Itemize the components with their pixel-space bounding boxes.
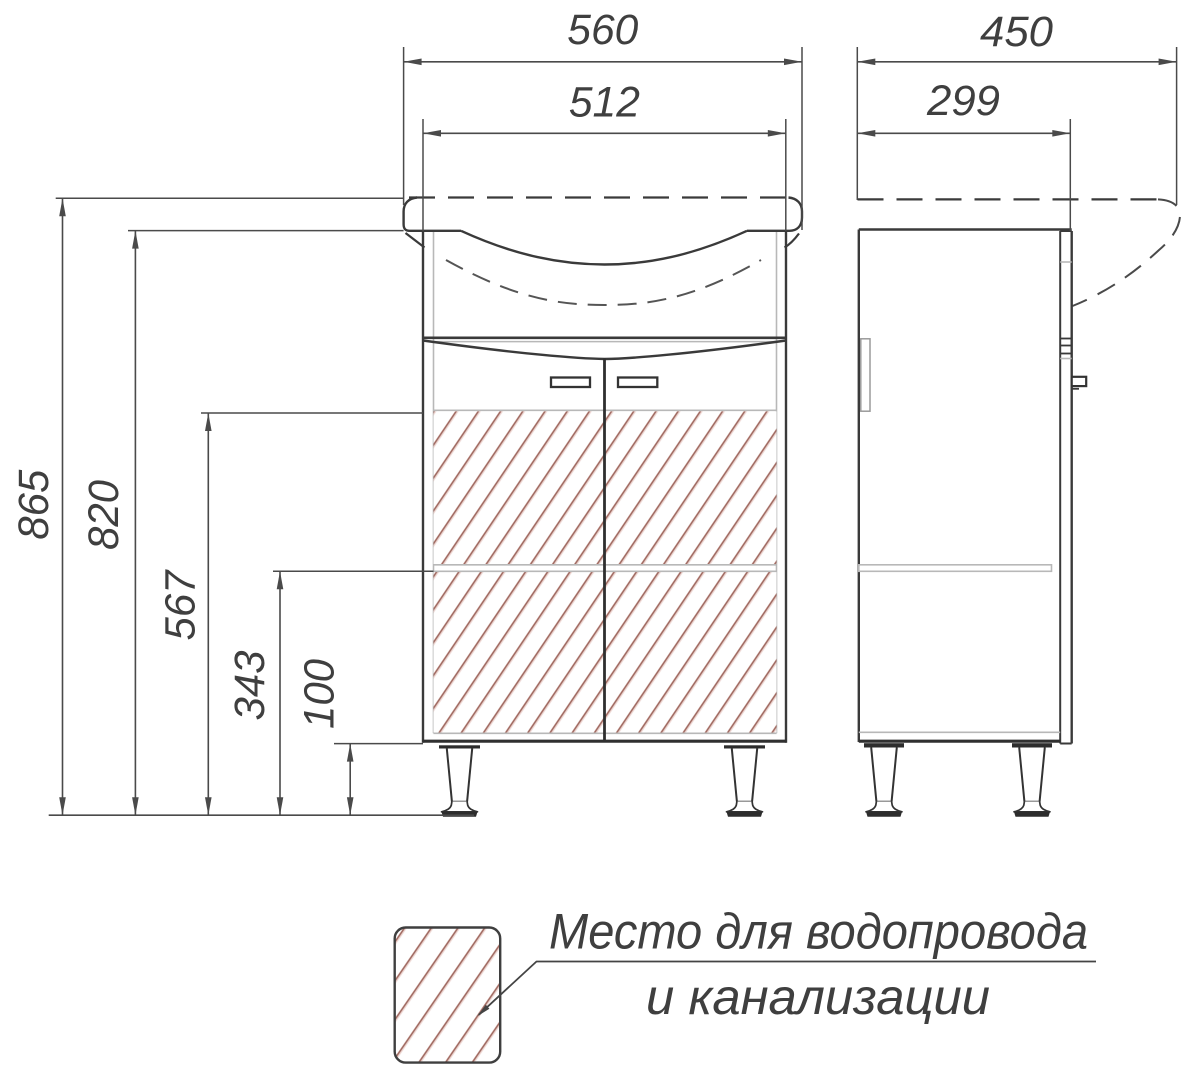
svg-text:299: 299 (926, 77, 1000, 125)
svg-text:865: 865 (10, 469, 58, 540)
svg-text:Место для водопровода: Место для водопровода (549, 904, 1088, 960)
svg-text:567: 567 (157, 568, 205, 640)
svg-text:343: 343 (226, 650, 274, 720)
svg-text:и канализации: и канализации (646, 969, 990, 1025)
svg-text:560: 560 (567, 6, 638, 54)
svg-text:820: 820 (80, 480, 128, 550)
svg-text:450: 450 (980, 8, 1053, 56)
svg-text:512: 512 (569, 79, 640, 127)
svg-text:100: 100 (296, 659, 344, 729)
